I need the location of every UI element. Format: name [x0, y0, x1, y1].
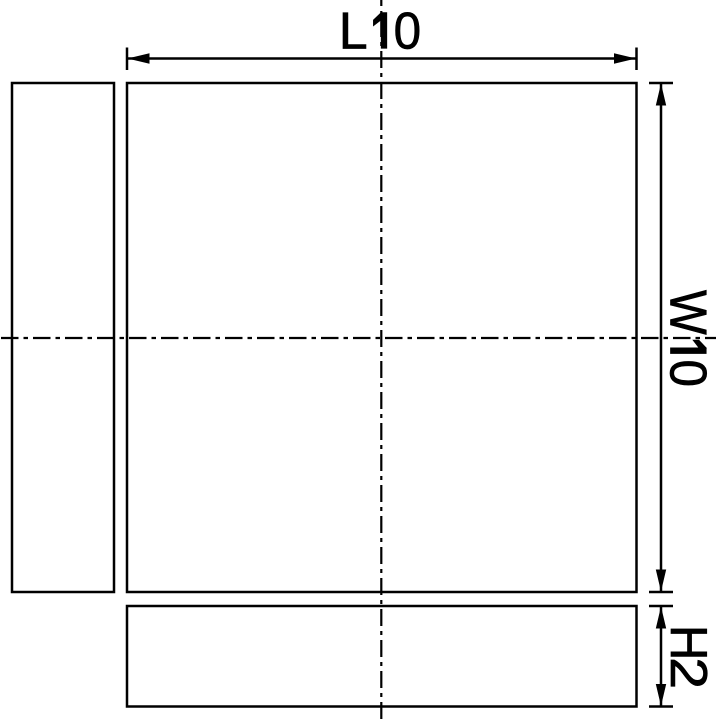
svg-text:H: H: [659, 625, 717, 661]
svg-text:W: W: [659, 290, 717, 335]
svg-text:L: L: [339, 2, 368, 60]
svg-text:2: 2: [659, 657, 717, 689]
svg-text:0: 0: [659, 360, 717, 388]
svg-text:0: 0: [394, 2, 422, 60]
